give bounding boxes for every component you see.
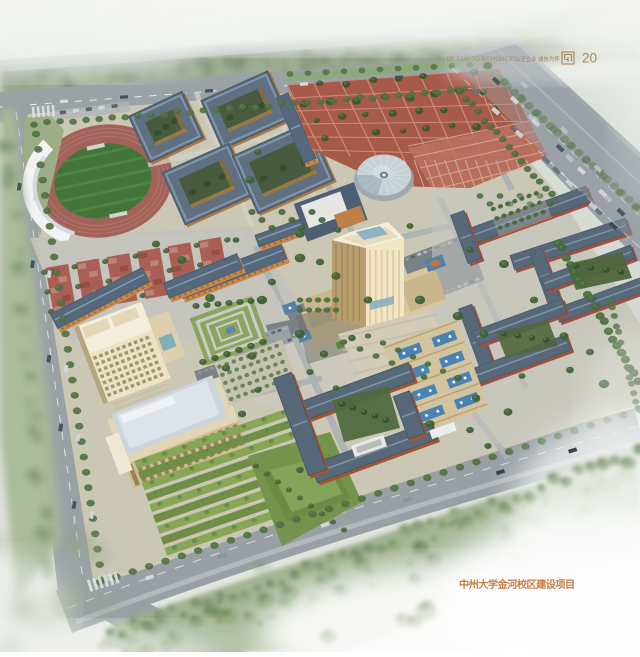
- svg-text:公正立业 诚信为怀: 公正立业 诚信为怀: [515, 55, 560, 63]
- svg-text:/: /: [511, 56, 513, 63]
- svg-text:中州大学金河校区建设项目: 中州大学金河校区建设项目: [459, 578, 575, 591]
- svg-text:20: 20: [582, 51, 597, 66]
- svg-text:TO BE FAIR TO BE HONEST: TO BE FAIR TO BE HONEST: [437, 57, 516, 63]
